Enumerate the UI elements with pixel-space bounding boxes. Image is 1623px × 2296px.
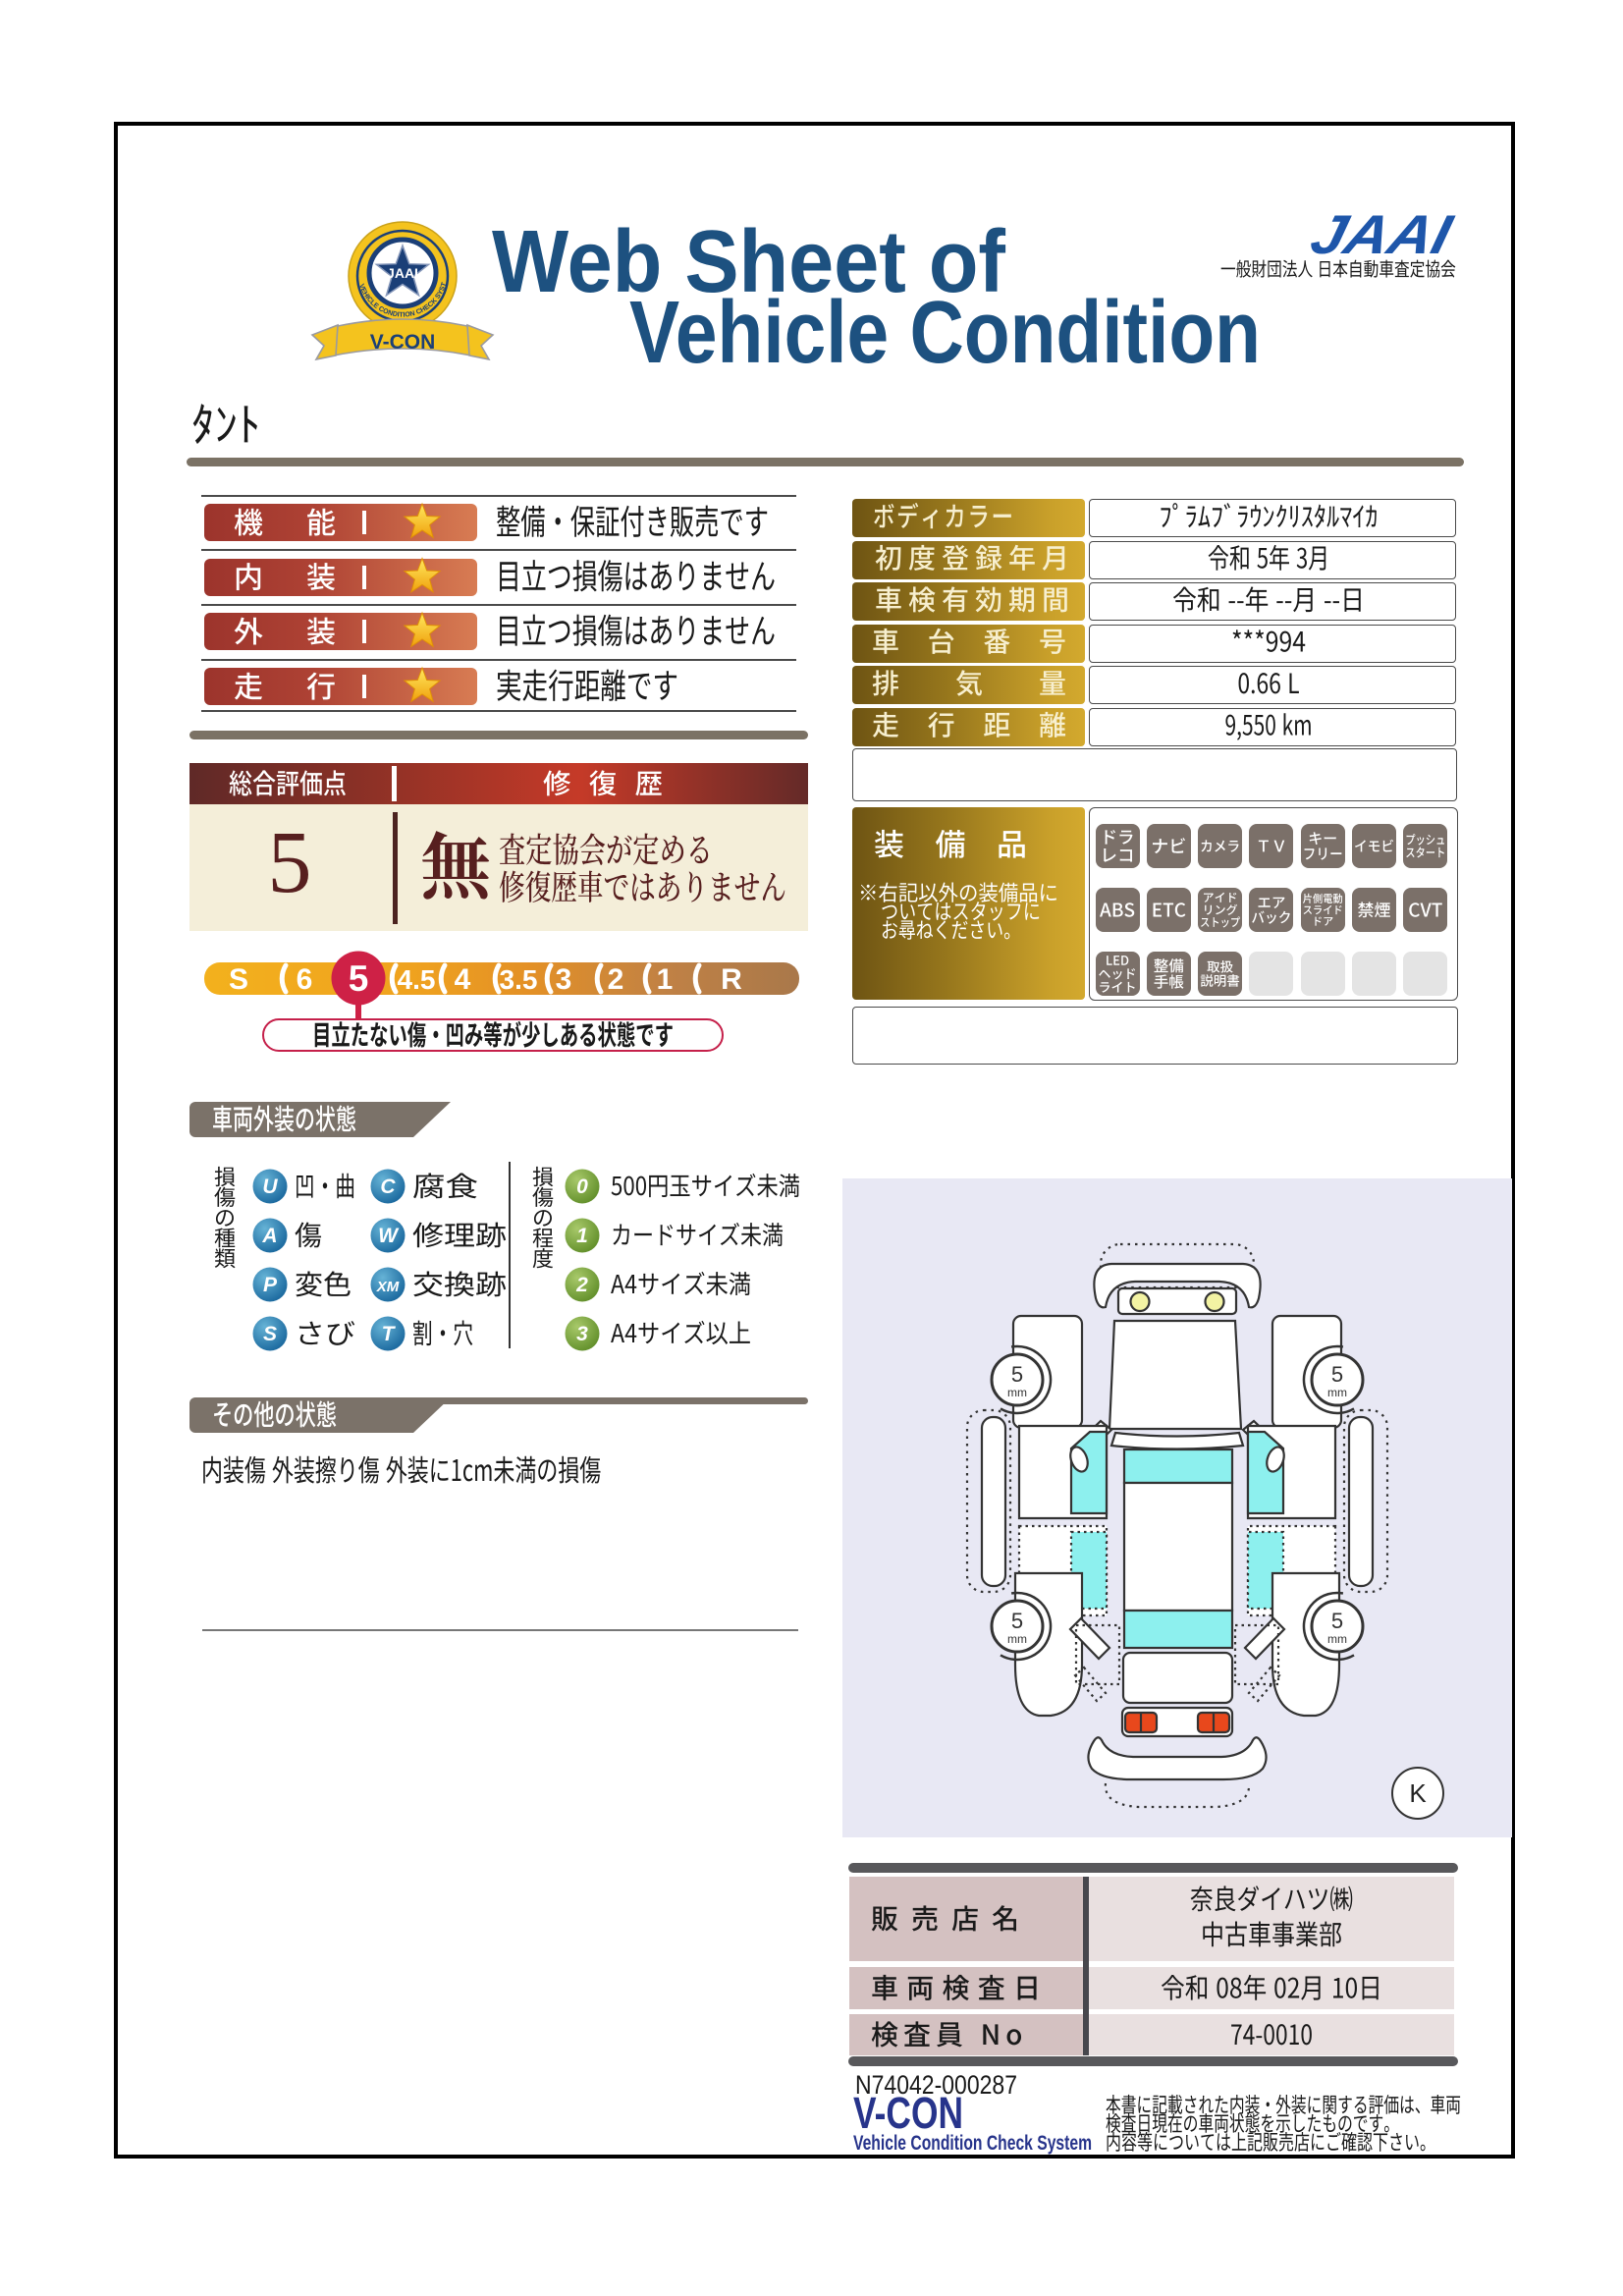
svg-text:4: 4	[455, 963, 471, 996]
svg-text:1: 1	[576, 1225, 588, 1247]
svg-text:R: R	[721, 963, 742, 996]
svg-text:U: U	[262, 1175, 278, 1198]
svg-text:A: A	[261, 1225, 277, 1247]
svg-text:XM: XM	[376, 1279, 400, 1295]
svg-text:mm: mm	[1327, 1632, 1347, 1646]
svg-text:W: W	[378, 1225, 400, 1247]
svg-text:5: 5	[1331, 1362, 1343, 1387]
svg-text:5: 5	[349, 958, 369, 999]
svg-text:S: S	[229, 963, 248, 996]
svg-text:Vehicle Condition: Vehicle Condition	[629, 284, 1261, 382]
svg-text:2: 2	[608, 963, 624, 996]
svg-text:5: 5	[1011, 1362, 1023, 1387]
svg-text:mm: mm	[1327, 1386, 1347, 1399]
svg-text:K: K	[1409, 1778, 1427, 1808]
svg-text:5: 5	[1331, 1609, 1343, 1633]
svg-text:3.5: 3.5	[500, 964, 538, 995]
svg-text:mm: mm	[1007, 1632, 1027, 1646]
svg-text:0: 0	[576, 1175, 588, 1198]
svg-text:3: 3	[576, 1323, 588, 1345]
svg-text:1: 1	[657, 963, 674, 996]
svg-text:S: S	[263, 1323, 277, 1345]
svg-text:3: 3	[556, 963, 572, 996]
svg-text:2: 2	[575, 1274, 588, 1296]
svg-text:JAAI: JAAI	[387, 265, 418, 281]
svg-text:4.5: 4.5	[398, 964, 436, 995]
svg-text:T: T	[382, 1323, 397, 1345]
svg-text:C: C	[380, 1175, 396, 1198]
svg-text:Vehicle Condition Check System: Vehicle Condition Check System	[853, 2132, 1092, 2155]
svg-text:5: 5	[1011, 1609, 1023, 1633]
svg-text:V-CON: V-CON	[853, 2088, 963, 2138]
svg-text:mm: mm	[1007, 1386, 1027, 1399]
svg-text:6: 6	[297, 963, 313, 996]
svg-text:JAAI: JAAI	[1305, 205, 1459, 266]
svg-text:P: P	[263, 1274, 278, 1296]
svg-text:V-CON: V-CON	[370, 331, 436, 354]
